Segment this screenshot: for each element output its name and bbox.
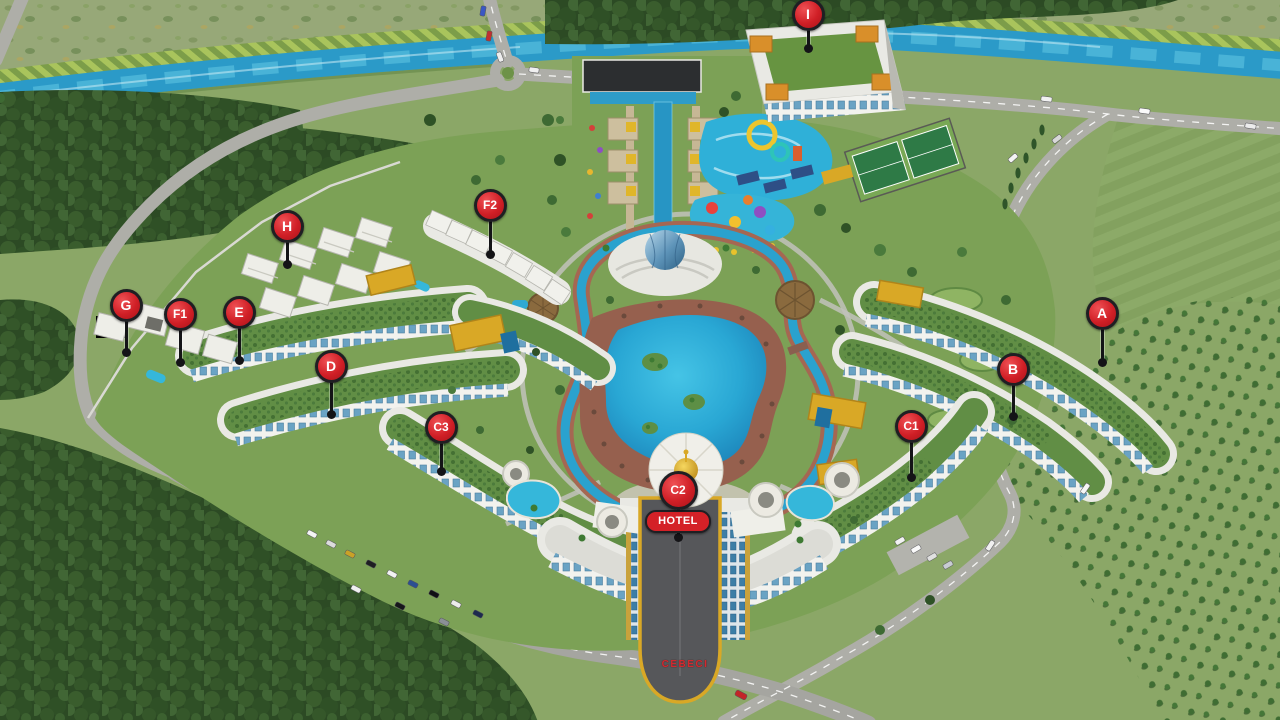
marker-circle-g[interactable]: G [110,289,143,322]
marker-circle-c1[interactable]: C1 [895,410,928,443]
marker-circle-d[interactable]: D [315,350,348,383]
marker-pin-dot [122,348,131,357]
marker-pin-dot [283,260,292,269]
marker-circle-f1[interactable]: F1 [164,298,197,331]
marker-pin-dot [1098,358,1107,367]
marker-pin-dot [176,358,185,367]
marker-pin-dot [486,250,495,259]
marker-pin-dot [437,467,446,476]
masterplan-scene [0,0,1280,720]
slide-tower [793,146,802,161]
marker-pin-dot [327,410,336,419]
marker-circle-c2[interactable]: C2 [659,471,698,510]
water-cascade [654,102,672,234]
thatched-hut-right [776,281,814,319]
marker-circle-i[interactable]: I [792,0,825,31]
marker-circle-f2[interactable]: F2 [474,189,507,222]
building-i [746,20,906,122]
marker-circle-b[interactable]: B [997,353,1030,386]
marker-circle-a[interactable]: A [1086,297,1119,330]
marker-pin-dot [1009,412,1018,421]
garden-pool-right [787,486,834,520]
marker-pin-dot [804,44,813,53]
entrance-sign: CEBECI [652,659,718,670]
marker-circle-c3[interactable]: C3 [425,411,458,444]
marker-pin-dot [674,533,683,542]
marker-circle-h[interactable]: H [271,210,304,243]
hotel-badge[interactable]: HOTEL [645,510,711,533]
marker-circle-e[interactable]: E [223,296,256,329]
marker-pin-dot [907,473,916,482]
marker-pin-dot [235,356,244,365]
masterplan-screenshot: ABC1HOTELC2C3DEF1F2GHI CEBECI [0,0,1280,720]
entrance-building [583,60,701,92]
garden-pool-left [507,480,561,518]
